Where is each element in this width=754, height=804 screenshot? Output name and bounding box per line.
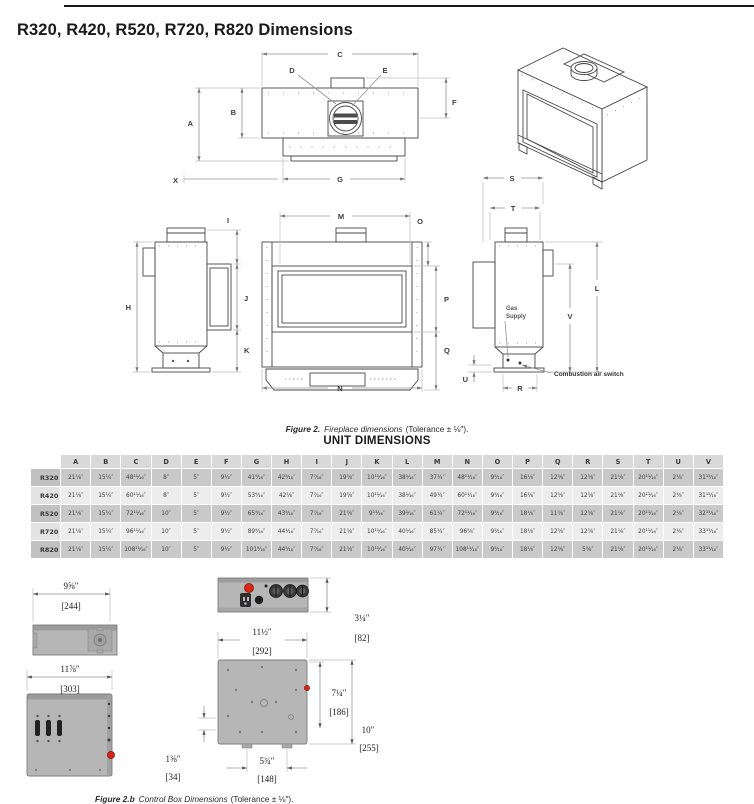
dim-bottom-width-in: 11½″ bbox=[252, 627, 271, 637]
table-cell: 12⅝″ bbox=[543, 469, 572, 486]
table-row-R520: R52021⅛″15¼″72¹¹⁄₁₆″10″5″9½″65⁹⁄₁₆″43⁵⁄₁… bbox=[31, 505, 723, 522]
dim-label-T: T bbox=[511, 204, 516, 213]
gas-supply-label-line1: Gas bbox=[506, 306, 518, 312]
table-cell: 21⅛″ bbox=[603, 487, 632, 504]
table-cell: 21⅝″ bbox=[332, 541, 361, 558]
table-cell: 10¹¹⁄₁₆″ bbox=[362, 523, 391, 540]
table-cell: 31¹⁵⁄₁₆″ bbox=[694, 487, 723, 504]
table-cell: 89⁹⁄₁₆″ bbox=[242, 523, 271, 540]
table-cell: 10¹¹⁄₁₆″ bbox=[362, 469, 391, 486]
table-cell: 48¹¹⁄₁₆″ bbox=[121, 469, 150, 486]
dim-label-D: D bbox=[289, 66, 295, 75]
iso-view bbox=[518, 48, 647, 189]
column-header-G: G bbox=[242, 455, 271, 468]
controlbox-side-view: 11⅞″ [303] bbox=[27, 664, 115, 776]
table-cell: 2⅛″ bbox=[664, 541, 693, 558]
table-cell: 12⅝″ bbox=[573, 523, 602, 540]
table-cell: 43⁵⁄₁₆″ bbox=[272, 505, 301, 522]
table-row-R720: R72021⅛″15¼″96¹¹⁄₁₆″10″5″9½″89⁹⁄₁₆″44¹⁄₁… bbox=[31, 523, 723, 540]
column-header-P: P bbox=[513, 455, 542, 468]
table-cell: 48¹¹⁄₁₆″ bbox=[453, 469, 482, 486]
control-knob-small bbox=[255, 596, 263, 604]
column-header-S: S bbox=[603, 455, 632, 468]
table-cell: 40¹⁄₁₆″ bbox=[393, 541, 422, 558]
dim-label-M: M bbox=[338, 212, 344, 221]
dim-label-I: I bbox=[227, 216, 229, 225]
table-cell: 21⅛″ bbox=[61, 469, 90, 486]
dim-label-P: P bbox=[444, 295, 449, 304]
table-cell: 20¹¹⁄₁₆″ bbox=[634, 469, 663, 486]
table-cell: 97¼″ bbox=[423, 541, 452, 558]
column-header-V: V bbox=[694, 455, 723, 468]
rotary-knobs bbox=[270, 585, 309, 598]
column-header-J: J bbox=[332, 455, 361, 468]
table-cell: 5″ bbox=[182, 541, 211, 558]
table-cell: 38¹⁄₁₆″ bbox=[393, 487, 422, 504]
row-model-label: R820 bbox=[31, 541, 60, 558]
table-cell: 15¼″ bbox=[91, 541, 120, 558]
dim-label-E: E bbox=[382, 66, 387, 75]
column-header-M: M bbox=[423, 455, 452, 468]
table-cell: 108¹¹⁄₁₆″ bbox=[121, 541, 150, 558]
table-cell: 21⅛″ bbox=[603, 541, 632, 558]
figure-2-caption-text: Fireplace dimensions bbox=[324, 424, 402, 434]
table-cell: 33¹⁵⁄₁₆″ bbox=[694, 523, 723, 540]
table-cell: 108¹¹⁄₁₆″ bbox=[453, 541, 482, 558]
manual-page: R320, R420, R520, R720, R820 Dimensions bbox=[0, 0, 754, 804]
column-header-L: L bbox=[393, 455, 422, 468]
table-cell: 41⁹⁄₁₆″ bbox=[242, 469, 271, 486]
dim-front-height-mm: [82] bbox=[355, 633, 370, 643]
table-cell: 85¼″ bbox=[423, 523, 452, 540]
column-header-K: K bbox=[362, 455, 391, 468]
table-cell: 5″ bbox=[182, 487, 211, 504]
column-header-F: F bbox=[212, 455, 241, 468]
table-cell: 60¹¹⁄₁₆″ bbox=[453, 487, 482, 504]
table-corner-cell bbox=[31, 455, 60, 468]
table-cell: 7⁷⁄₁₆″ bbox=[302, 469, 331, 486]
column-header-E: E bbox=[182, 455, 211, 468]
column-header-U: U bbox=[664, 455, 693, 468]
table-cell: 7⁷⁄₁₆″ bbox=[302, 487, 331, 504]
figure-2b-caption-label: Figure 2.b bbox=[95, 794, 135, 804]
table-cell: 38¹⁄₁₆″ bbox=[393, 469, 422, 486]
dim-bottom-width-mm: [292] bbox=[252, 646, 272, 656]
table-cell: 49¼″ bbox=[423, 487, 452, 504]
table-cell: 19⅝″ bbox=[332, 469, 361, 486]
dim-side-width-in: 11⅞″ bbox=[60, 664, 79, 674]
table-cell: 5″ bbox=[182, 469, 211, 486]
dim-label-F: F bbox=[452, 98, 457, 107]
table-cell: 65⁹⁄₁₆″ bbox=[242, 505, 271, 522]
dim-bottom-offset-in: 1⅜″ bbox=[166, 754, 181, 764]
controlbox-bottom-view: 11½″ [292] 7¼″ [186] 10″ [255] bbox=[166, 627, 379, 784]
table-cell: 96¹¹⁄₁₆″ bbox=[121, 523, 150, 540]
dim-side-width-mm: [303] bbox=[60, 684, 80, 694]
table-cell: 53⁹⁄₁₆″ bbox=[242, 487, 271, 504]
table-cell: 12⅝″ bbox=[573, 487, 602, 504]
dim-label-K: K bbox=[244, 346, 250, 355]
front-view: M N O P Q bbox=[262, 212, 450, 393]
table-cell: 19⅝″ bbox=[332, 487, 361, 504]
table-cell: 61¼″ bbox=[423, 505, 452, 522]
dim-bottom-offset-mm: [34] bbox=[166, 772, 181, 782]
figure-2b-caption-tolerance: (Tolerance ± ⅛″). bbox=[231, 794, 294, 804]
row-model-label: R720 bbox=[31, 523, 60, 540]
dim-label-U: U bbox=[463, 375, 468, 384]
top-view: C D E F A B X G bbox=[173, 50, 457, 185]
dim-label-R: R bbox=[517, 384, 523, 393]
header-rule bbox=[64, 5, 754, 7]
figure-2-caption-label: Figure 2. bbox=[286, 424, 321, 434]
figure-2b-diagram: 9⅝″ [244] bbox=[0, 572, 754, 791]
dim-bottom-center-mm: [148] bbox=[257, 774, 277, 784]
table-cell: 20¹¹⁄₁₆″ bbox=[634, 541, 663, 558]
table-cell: 42⁵⁄₁₆″ bbox=[272, 469, 301, 486]
dim-label-O: O bbox=[417, 217, 423, 226]
dim-front-height-in: 3¼″ bbox=[355, 613, 370, 623]
power-outlet bbox=[240, 593, 251, 607]
table-cell: 21⅛″ bbox=[61, 541, 90, 558]
table-cell: 9½″ bbox=[212, 469, 241, 486]
row-model-label: R520 bbox=[31, 505, 60, 522]
table-cell: 12⅝″ bbox=[543, 523, 572, 540]
side-view-right: S T L V U bbox=[463, 174, 624, 393]
table-cell: 8″ bbox=[152, 487, 181, 504]
table-cell: 21⅛″ bbox=[603, 469, 632, 486]
dim-label-C: C bbox=[337, 50, 343, 59]
table-cell: 33¹⁵⁄₁₆″ bbox=[694, 541, 723, 558]
table-cell: 9½″ bbox=[212, 523, 241, 540]
column-header-C: C bbox=[121, 455, 150, 468]
table-cell: 21⅛″ bbox=[61, 487, 90, 504]
table-cell: 20¹¹⁄₁₆″ bbox=[634, 523, 663, 540]
table-cell: 42⅛″ bbox=[272, 487, 301, 504]
controlbox-top-view: 9⅝″ [244] bbox=[33, 581, 117, 655]
controlbox-front-view: 3¼″ [82] bbox=[218, 578, 370, 643]
table-cell: 60¹¹⁄₁₆″ bbox=[121, 487, 150, 504]
table-cell: 12⅝″ bbox=[543, 487, 572, 504]
table-row-R320: R32021⅛″15¼″48¹¹⁄₁₆″8″5″9½″41⁹⁄₁₆″42⁵⁄₁₆… bbox=[31, 469, 723, 486]
table-cell: 7⁷⁄₁₆″ bbox=[302, 523, 331, 540]
dim-label-J: J bbox=[244, 294, 248, 303]
table-cell: 101⁹⁄₁₆″ bbox=[242, 541, 271, 558]
table-cell: 2⅛″ bbox=[664, 523, 693, 540]
dim-top-width-in: 9⅝″ bbox=[64, 581, 79, 591]
gas-supply-label-line2: Supply bbox=[506, 314, 527, 320]
table-cell: 15¼″ bbox=[91, 469, 120, 486]
dim-bottom-depth-in: 7¼″ bbox=[332, 688, 347, 698]
table-title: UNIT DIMENSIONS bbox=[0, 435, 754, 447]
column-header-Q: Q bbox=[543, 455, 572, 468]
table-cell: 9¹³⁄₁₆″ bbox=[362, 505, 391, 522]
dim-bottom-center-in: 5¾″ bbox=[260, 756, 275, 766]
combustion-air-switch-label: Combustion air switch bbox=[554, 371, 624, 378]
side-view-left: H I J K bbox=[126, 216, 250, 372]
table-row-R820: R82021⅛″15¼″108¹¹⁄₁₆″10″5″9½″101⁹⁄₁₆″44⁵… bbox=[31, 541, 723, 558]
table-cell: 21⅝″ bbox=[332, 523, 361, 540]
dim-label-B: B bbox=[231, 108, 237, 117]
column-header-I: I bbox=[302, 455, 331, 468]
table-cell: 44⁵⁄₁₆″ bbox=[272, 541, 301, 558]
column-header-D: D bbox=[152, 455, 181, 468]
table-cell: 18⅛″ bbox=[513, 505, 542, 522]
table-row-R420: R42021⅛″15¼″60¹¹⁄₁₆″8″5″9½″53⁹⁄₁₆″42⅛″7⁷… bbox=[31, 487, 723, 504]
dim-label-H: H bbox=[126, 303, 131, 312]
table-cell: 10″ bbox=[152, 523, 181, 540]
table-cell: 9⁵⁄₁₆″ bbox=[483, 469, 512, 486]
figure-2-diagram: C D E F A B X G bbox=[0, 42, 754, 419]
table-cell: 16⅛″ bbox=[513, 487, 542, 504]
table-cell: 2⅛″ bbox=[664, 487, 693, 504]
column-header-A: A bbox=[61, 455, 90, 468]
table-cell: 10″ bbox=[152, 505, 181, 522]
table-cell: 20¹¹⁄₁₆″ bbox=[634, 487, 663, 504]
column-header-O: O bbox=[483, 455, 512, 468]
dim-label-G: G bbox=[337, 175, 343, 184]
dim-label-V: V bbox=[567, 312, 572, 321]
table-cell: 18⅛″ bbox=[513, 541, 542, 558]
table-cell: 5⅝″ bbox=[573, 541, 602, 558]
table-cell: 10″ bbox=[152, 541, 181, 558]
dim-side-height-mm: [255] bbox=[359, 743, 379, 753]
row-model-label: R420 bbox=[31, 487, 60, 504]
dim-label-Q: Q bbox=[444, 346, 450, 355]
dim-bottom-depth-mm: [186] bbox=[329, 707, 349, 717]
table-cell: 9½″ bbox=[212, 541, 241, 558]
dim-side-height-in: 10″ bbox=[362, 725, 375, 735]
table-cell: 12⅝″ bbox=[573, 469, 602, 486]
table-cell: 15¼″ bbox=[91, 523, 120, 540]
unit-dimensions-table: ABCDEFGHIJKLMNOPQRSTUVR32021⅛″15¼″48¹¹⁄₁… bbox=[30, 454, 724, 559]
table-cell: 72¹¹⁄₁₆″ bbox=[121, 505, 150, 522]
column-header-H: H bbox=[272, 455, 301, 468]
dim-top-width-mm: [244] bbox=[61, 601, 81, 611]
table-cell: 2⅛″ bbox=[664, 469, 693, 486]
table-cell: 20¹¹⁄₁₆″ bbox=[634, 505, 663, 522]
table-cell: 9½″ bbox=[212, 487, 241, 504]
table-cell: 72¹¹⁄₁₆″ bbox=[453, 505, 482, 522]
table-cell: 39¹⁄₁₆″ bbox=[393, 505, 422, 522]
dim-label-L: L bbox=[595, 284, 600, 293]
page-title: R320, R420, R520, R720, R820 Dimensions bbox=[17, 21, 353, 40]
table-cell: 12⅝″ bbox=[543, 541, 572, 558]
table-cell: 96⅝″ bbox=[453, 523, 482, 540]
column-header-R: R bbox=[573, 455, 602, 468]
table-cell: 5″ bbox=[182, 505, 211, 522]
column-header-N: N bbox=[453, 455, 482, 468]
red-power-button bbox=[245, 584, 254, 593]
table-cell: 9½″ bbox=[212, 505, 241, 522]
dim-label-A: A bbox=[188, 119, 194, 128]
table-cell: 21⅝″ bbox=[332, 505, 361, 522]
table-cell: 10¹¹⁄₁₆″ bbox=[362, 541, 391, 558]
table-cell: 18⅛″ bbox=[513, 523, 542, 540]
table-cell: 7⁷⁄₁₆″ bbox=[302, 505, 331, 522]
table-cell: 31¹⁵⁄₁₆″ bbox=[694, 469, 723, 486]
table-cell: 16⅛″ bbox=[513, 469, 542, 486]
dim-label-S: S bbox=[509, 174, 514, 183]
figure2b-drawing: 9⅝″ [244] bbox=[0, 572, 754, 786]
figure2-drawing: C D E F A B X G bbox=[0, 42, 754, 414]
table-cell: 32¹⁵⁄₁₆″ bbox=[694, 505, 723, 522]
table-cell: 8″ bbox=[152, 469, 181, 486]
figure-2-caption: Figure 2.Fireplace dimensions(Tolerance … bbox=[0, 424, 754, 434]
red-reset-button bbox=[304, 685, 309, 690]
figure-2b-caption: Figure 2.bControl Box Dimensions(Toleran… bbox=[95, 794, 293, 804]
table-cell: 44¹⁄₁₆″ bbox=[272, 523, 301, 540]
table-cell: 21⅛″ bbox=[61, 505, 90, 522]
column-header-B: B bbox=[91, 455, 120, 468]
figure-2-caption-tolerance: (Tolerance ± ⅛″). bbox=[406, 424, 469, 434]
column-header-T: T bbox=[634, 455, 663, 468]
figure-2b-caption-text: Control Box Dimensions bbox=[139, 794, 228, 804]
table-cell: 9⁵⁄₁₆″ bbox=[483, 487, 512, 504]
table-cell: 15¼″ bbox=[91, 505, 120, 522]
dim-label-N: N bbox=[337, 384, 342, 393]
table-cell: 12⅝″ bbox=[573, 505, 602, 522]
table-cell: 9⁵⁄₁₆″ bbox=[483, 541, 512, 558]
table-cell: 21⅛″ bbox=[61, 523, 90, 540]
table-cell: 11⅝″ bbox=[543, 505, 572, 522]
table-cell: 21⅛″ bbox=[603, 505, 632, 522]
table-cell: 37¼″ bbox=[423, 469, 452, 486]
row-model-label: R320 bbox=[31, 469, 60, 486]
table-cell: 5″ bbox=[182, 523, 211, 540]
table-cell: 40¹⁄₁₆″ bbox=[393, 523, 422, 540]
table-cell: 2⅛″ bbox=[664, 505, 693, 522]
table-cell: 7⁷⁄₁₆″ bbox=[302, 541, 331, 558]
table-cell: 21⅛″ bbox=[603, 523, 632, 540]
red-side-button bbox=[108, 752, 115, 759]
table-cell: 15¼″ bbox=[91, 487, 120, 504]
table-cell: 9⁵⁄₁₆″ bbox=[483, 505, 512, 522]
dim-label-X: X bbox=[173, 176, 178, 185]
table-cell: 9⁵⁄₁₆″ bbox=[483, 523, 512, 540]
table-cell: 10¹¹⁄₁₆″ bbox=[362, 487, 391, 504]
